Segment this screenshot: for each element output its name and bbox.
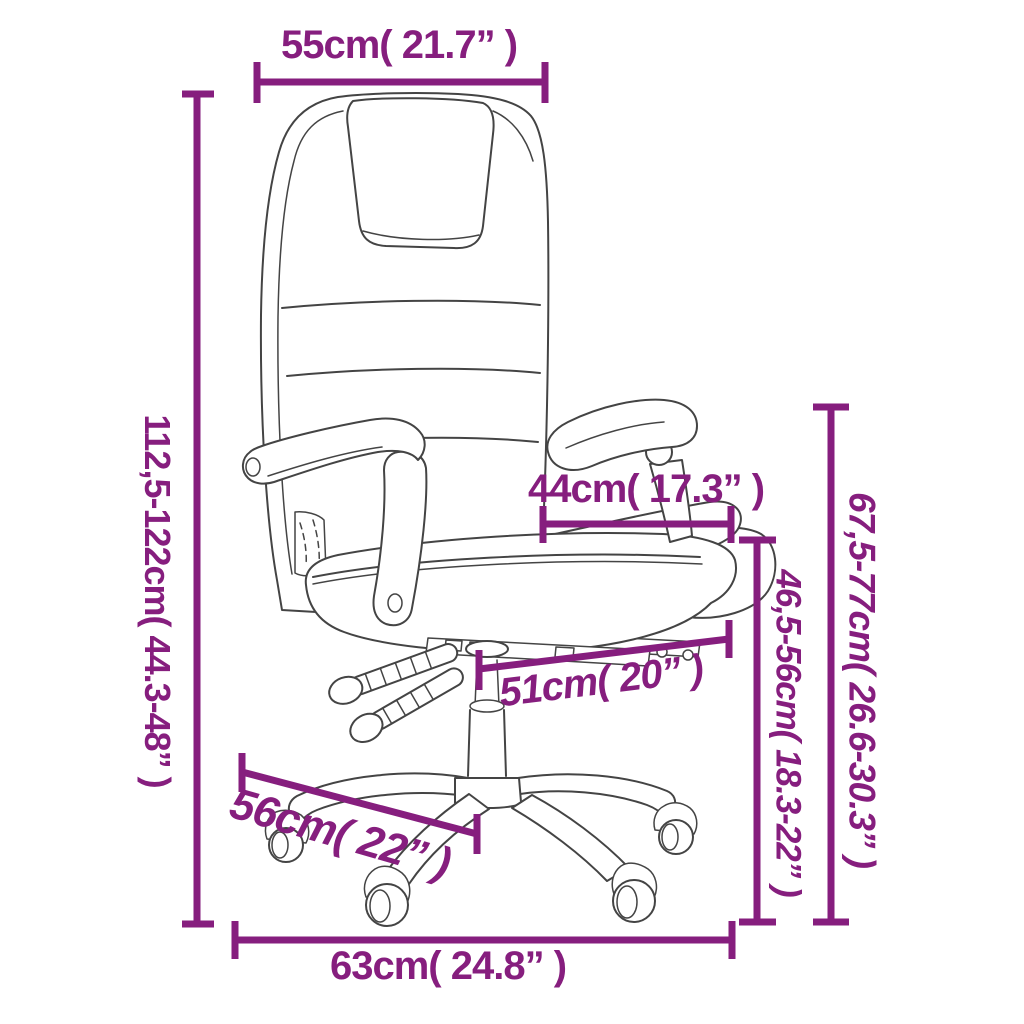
dim-base-width-label: 63cm( 24.8” ) [330, 946, 566, 986]
caster-front-right [612, 863, 656, 922]
dim-right-outer-height-label: 67,5-77cm( 26.6-30.3” ) [844, 492, 881, 868]
dim-left-height-line [182, 94, 214, 924]
chair-headrest-pillow [347, 98, 493, 248]
base-leg-front-right [512, 795, 629, 881]
dim-seat-width-label: 44cm( 17.3” ) [528, 469, 764, 509]
product-dimension-diagram: 55cm( 21.7” ) 112,5-122cm( 44.3-48” ) 44… [0, 0, 1024, 1024]
chair-seat [306, 533, 736, 652]
dim-left-height-label: 112,5-122cm( 44.3-48” ) [139, 414, 175, 787]
dim-top-width-label: 55cm( 21.7” ) [281, 25, 517, 65]
chair-recline-lever [325, 638, 461, 709]
dim-right-inner-height-label: 46,5-56cm( 18.3-22” ) [771, 569, 806, 896]
caster-back-right [654, 803, 697, 854]
